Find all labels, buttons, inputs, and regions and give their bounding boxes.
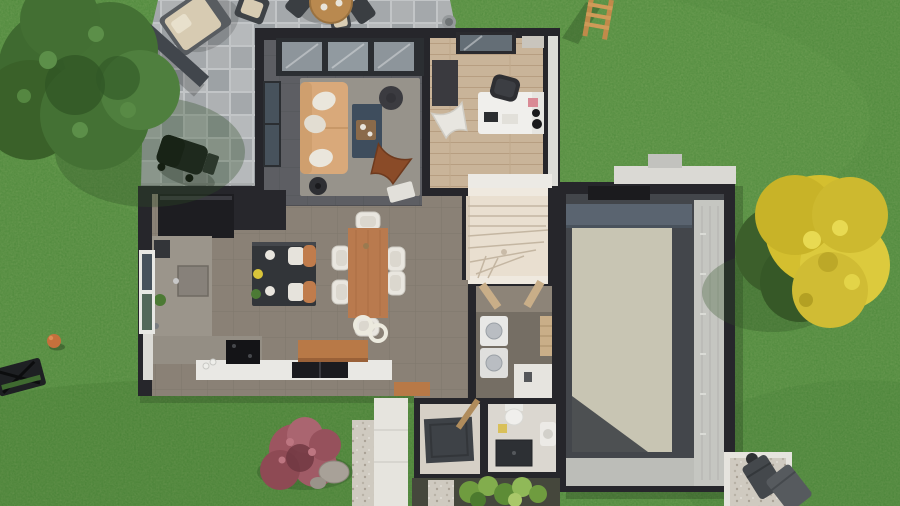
utility-item (524, 372, 532, 382)
white-garden-wall (614, 166, 736, 184)
kitchen-dining (152, 190, 468, 398)
desk-speaker-1 (532, 109, 540, 117)
office-window-glass (460, 35, 512, 51)
stairs-railing (466, 196, 470, 280)
dining-chair-left-1 (332, 246, 350, 270)
wine-glass-1 (203, 363, 209, 369)
dining-chair-left-2 (332, 280, 350, 304)
coffee-cup-2 (368, 132, 373, 137)
toilet (505, 409, 523, 425)
bar-stool-1 (288, 245, 316, 267)
stairs-base (468, 196, 548, 278)
coffee-cup-1 (360, 124, 366, 130)
staircase (466, 188, 548, 284)
pouf-button (386, 93, 396, 103)
planting-bed-gravel (428, 480, 454, 506)
pot-inner (445, 18, 453, 26)
sofa (300, 82, 348, 174)
floorplan-render (0, 0, 900, 506)
laptop (484, 112, 498, 122)
floor-lamp-stem (315, 183, 321, 189)
dining-chair-right-1 (387, 247, 405, 271)
table-plate-1 (321, 4, 328, 11)
island-plate-1 (265, 250, 275, 260)
kitchen-window (139, 250, 155, 334)
living-room (264, 38, 424, 206)
planter-pot (442, 15, 456, 29)
wine-glass-2 (210, 359, 216, 365)
bar-stool-2 (288, 281, 316, 303)
desk-speaker-2 (532, 119, 542, 129)
garage-door-panel-wall (694, 200, 724, 486)
credenza (468, 174, 552, 188)
wc-accessory (498, 424, 507, 433)
kitchen-island (251, 242, 316, 306)
shower-drain (512, 451, 516, 455)
pink-notepad (528, 98, 538, 107)
rock-small (310, 477, 326, 489)
dryer-door (486, 355, 502, 371)
garage (566, 186, 724, 486)
wood-sideboard-edge (298, 358, 368, 362)
cooktop (226, 340, 260, 364)
table-decor (363, 243, 369, 249)
utility-counter (514, 364, 552, 398)
utility-room (476, 280, 552, 398)
office (430, 32, 558, 188)
papers (502, 114, 518, 124)
glass-bay (276, 38, 424, 76)
cooktop-burner-2 (248, 354, 252, 358)
coffee-machine (154, 240, 170, 258)
coffee-table-tray (356, 120, 376, 140)
shadow-below-garage (566, 492, 738, 499)
hall-lowboard (394, 382, 430, 396)
gravel-path (352, 420, 374, 506)
island-plant (251, 289, 261, 299)
workbench-edge (566, 225, 692, 228)
shadow-below-kitchen (140, 396, 414, 403)
sink-faucet (173, 278, 179, 284)
scene-canvas (0, 0, 900, 506)
workbench-strip (566, 204, 692, 228)
island-plate-2 (265, 286, 275, 296)
kitchen-plant (154, 294, 166, 306)
tall-black-cabinet-2 (234, 190, 286, 230)
side-window (264, 82, 280, 166)
white-walkway (374, 398, 408, 506)
counter-sink (178, 266, 208, 296)
stairs-top-landing (468, 188, 548, 196)
kitchen-window-pane-2 (142, 294, 152, 330)
garden-wall-step (648, 154, 682, 168)
garage-roof-beam (588, 186, 650, 200)
washbasin-bowl (543, 429, 553, 439)
stairs-newel (501, 249, 507, 255)
office-vent (522, 36, 544, 48)
dining-chair-right-2 (387, 271, 405, 295)
dining-chair-top (356, 212, 380, 230)
bathroom-wc (488, 404, 556, 472)
lemon-bowl (253, 269, 263, 279)
kitchen-window-pane-1 (142, 254, 152, 290)
washer-door (486, 323, 502, 339)
cooktop-burner-1 (232, 344, 236, 348)
dark-cabinet (432, 60, 458, 106)
office-exterior-white-wall (548, 36, 558, 186)
doormat (424, 417, 474, 463)
